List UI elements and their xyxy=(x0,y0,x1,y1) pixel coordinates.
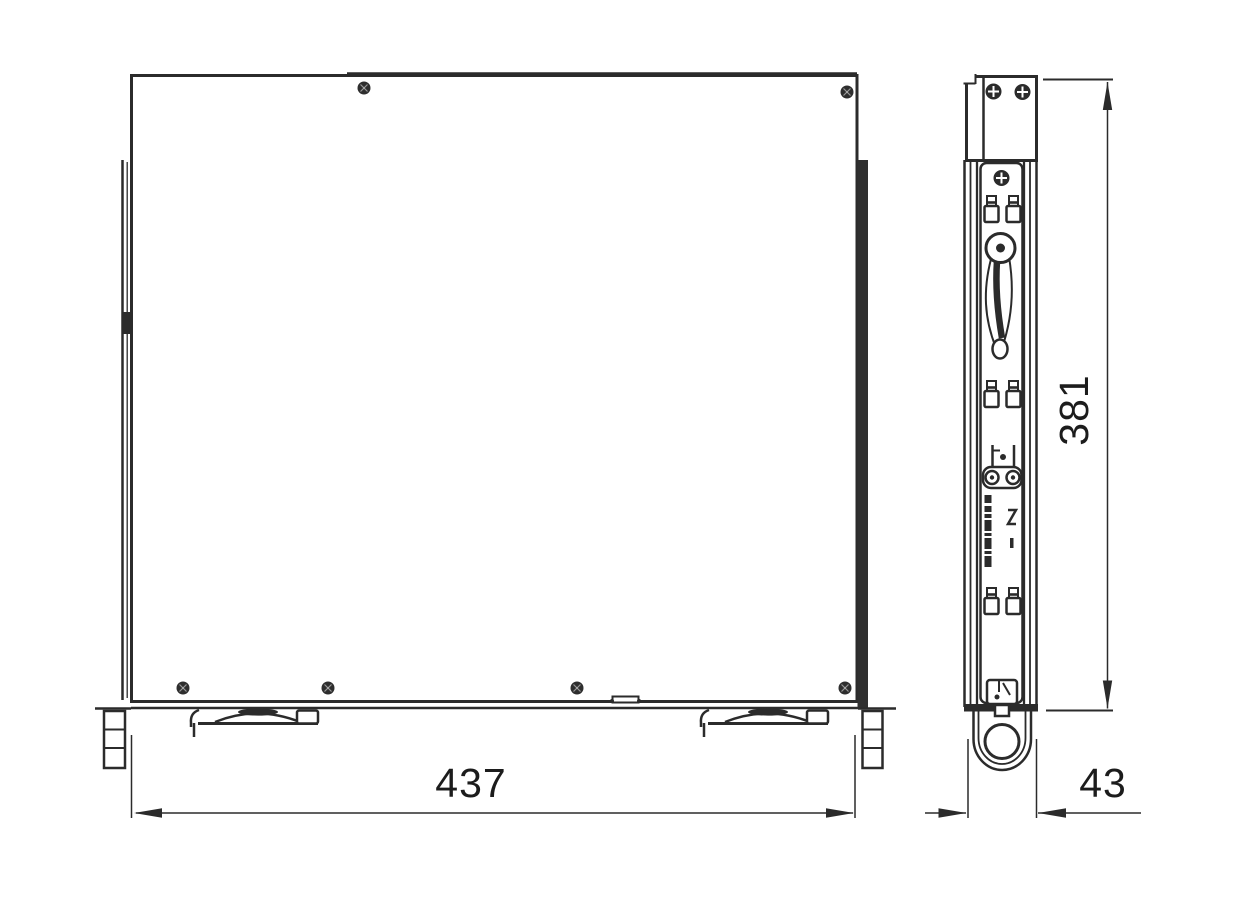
bottom-edge-notch xyxy=(610,697,641,704)
arrow-right-icon xyxy=(939,808,967,818)
mount-bracket-right xyxy=(858,709,896,769)
phillips-screw-icon xyxy=(986,84,1002,100)
screw-head xyxy=(358,82,371,95)
screw-head xyxy=(322,682,335,695)
arrow-up-icon xyxy=(1103,82,1112,110)
screw-head xyxy=(839,682,852,695)
mount-bracket-left xyxy=(95,709,131,769)
handle-ring xyxy=(985,725,1019,759)
side-view xyxy=(925,73,1141,818)
top-view xyxy=(95,74,896,818)
dim-depth-label: 43 xyxy=(1063,761,1143,805)
side-top-bracket xyxy=(963,73,1037,161)
arrow-right-icon xyxy=(826,808,854,818)
front-latch-left xyxy=(191,708,318,737)
rail-lock-block xyxy=(122,312,132,334)
dim-height-label: 381 xyxy=(1052,350,1096,470)
screw-head xyxy=(571,682,584,695)
screw-head xyxy=(177,682,190,695)
dim-width-label: 437 xyxy=(411,761,531,805)
arrow-down-icon xyxy=(1103,681,1112,709)
arrow-left-icon xyxy=(134,808,162,818)
drawing-canvas: 437 381 43 xyxy=(0,0,1254,915)
right-slide-rail xyxy=(858,160,869,709)
front-latch-right xyxy=(701,708,828,737)
end-stop-block xyxy=(987,680,1017,704)
phillips-screw-icon xyxy=(1015,84,1031,100)
phillips-screw-icon xyxy=(994,170,1010,186)
arrow-left-icon xyxy=(1038,808,1066,818)
chassis-outline xyxy=(132,76,858,702)
screw-head xyxy=(841,86,854,99)
pull-handle xyxy=(974,705,1032,770)
side-bottom-end xyxy=(964,680,1038,770)
